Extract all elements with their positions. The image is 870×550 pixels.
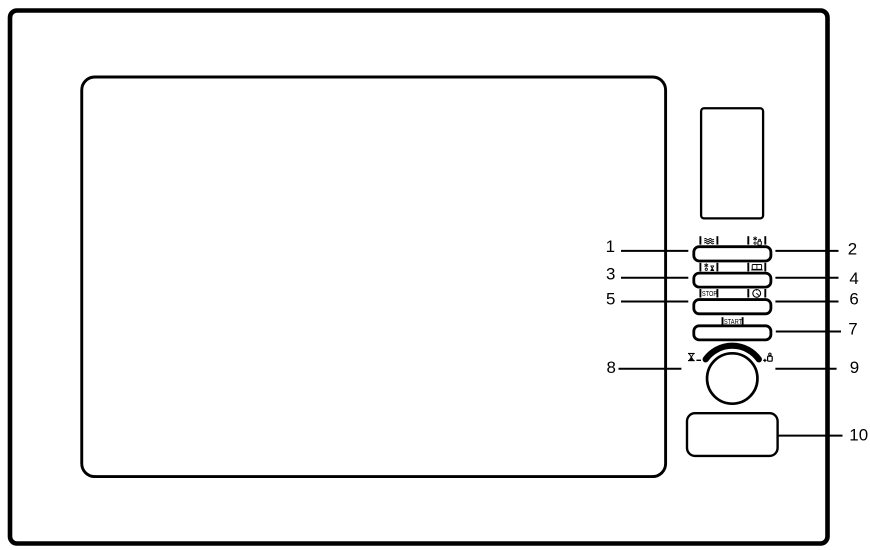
svg-text:4: 4 bbox=[849, 269, 858, 288]
svg-text:1: 1 bbox=[606, 237, 615, 256]
svg-text:6: 6 bbox=[849, 289, 858, 308]
svg-text:2: 2 bbox=[848, 240, 857, 259]
svg-text:10: 10 bbox=[849, 425, 868, 444]
svg-text:9: 9 bbox=[850, 358, 859, 377]
svg-text:7: 7 bbox=[848, 319, 857, 338]
svg-text:STOP: STOP bbox=[702, 289, 717, 298]
svg-text:8: 8 bbox=[606, 358, 615, 377]
svg-text:5: 5 bbox=[606, 290, 615, 309]
svg-text:3: 3 bbox=[606, 265, 615, 284]
